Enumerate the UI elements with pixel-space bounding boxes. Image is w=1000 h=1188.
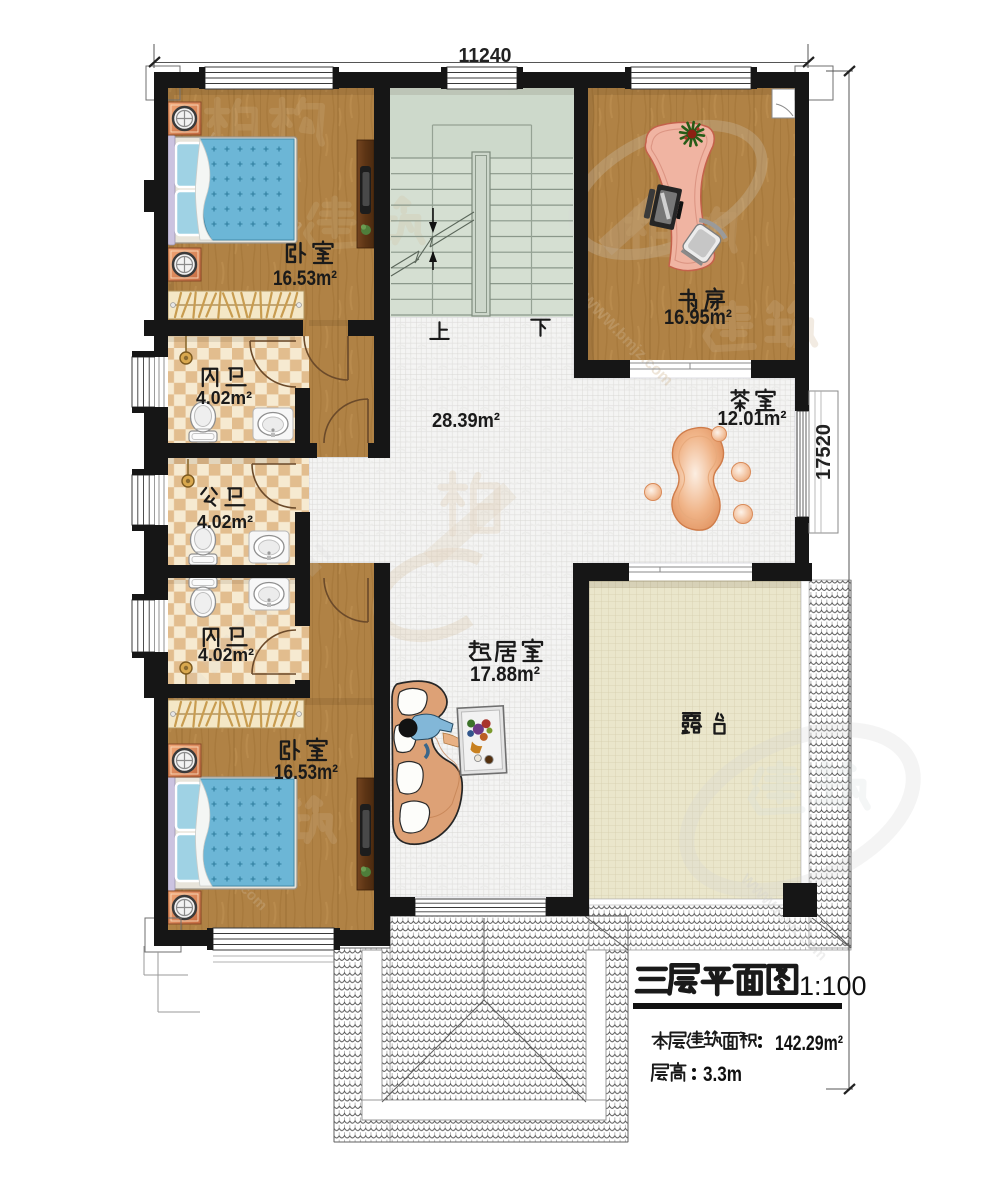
svg-text:142.29m²: 142.29m² (775, 1032, 843, 1055)
svg-text:11240: 11240 (459, 45, 512, 67)
svg-text:4.02m²: 4.02m² (198, 645, 254, 665)
svg-text:16.53m²: 16.53m² (273, 267, 337, 290)
svg-text:12.01m²: 12.01m² (718, 408, 787, 430)
svg-text:3.3m: 3.3m (703, 1063, 742, 1086)
svg-text:16.95m²: 16.95m² (664, 306, 732, 329)
svg-text:16.53m²: 16.53m² (274, 761, 338, 784)
svg-text:1:100: 1:100 (799, 971, 867, 1001)
svg-text:28.39m²: 28.39m² (432, 410, 500, 432)
svg-text:17520: 17520 (813, 424, 835, 480)
svg-text:4.02m²: 4.02m² (196, 388, 252, 408)
svg-text:17.88m²: 17.88m² (470, 663, 540, 686)
svg-text:4.02m²: 4.02m² (197, 512, 253, 532)
